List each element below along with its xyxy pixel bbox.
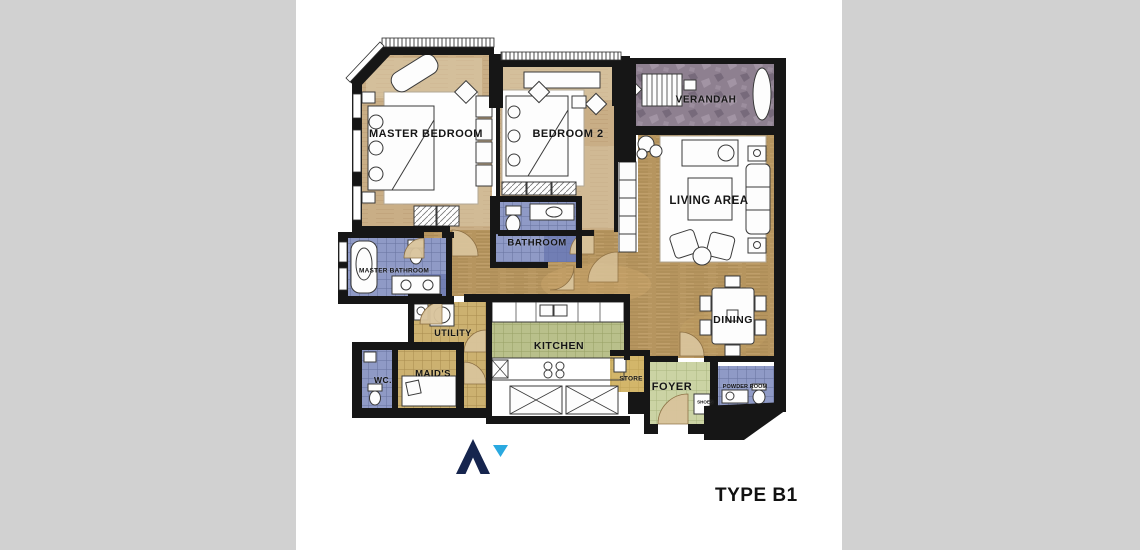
room-label-bathroom: BATHROOM [507, 238, 566, 249]
floor-plan-drawing [296, 0, 842, 550]
room-label-shoes: SHOES [697, 400, 713, 405]
room-label-bedroom-2: BEDROOM 2 [532, 128, 603, 140]
brand-logo [450, 434, 514, 480]
room-label-maids: MAID'S [415, 369, 451, 380]
room-label-utility: UTILITY [434, 328, 472, 338]
room-label-living-area: LIVING AREA [669, 195, 748, 207]
room-label-foyer: FOYER [652, 381, 692, 393]
floor-plan: MASTER BEDROOM BEDROOM 2 VERANDAH LIVING… [296, 0, 842, 550]
logo-triangle-icon [493, 445, 508, 457]
room-label-kitchen: KITCHEN [534, 340, 584, 352]
plan-type-label: TYPE B1 [715, 485, 835, 507]
room-label-verandah: VERANDAH [676, 95, 737, 106]
plan-sheet: MASTER BEDROOM BEDROOM 2 VERANDAH LIVING… [296, 0, 842, 550]
store-fixtures [614, 358, 626, 372]
maids-furniture [402, 376, 456, 406]
room-label-master-bedroom: MASTER BEDROOM [369, 128, 483, 140]
logo-arrow-icon [456, 439, 490, 474]
room-label-master-bathroom: MASTER BATHROOM [359, 268, 429, 275]
room-label-powder-room: POWDER ROOM [723, 384, 768, 390]
room-label-dining: DINING [713, 314, 753, 326]
room-label-wc: WC. [374, 375, 392, 385]
room-label-store: STORE [619, 376, 642, 383]
